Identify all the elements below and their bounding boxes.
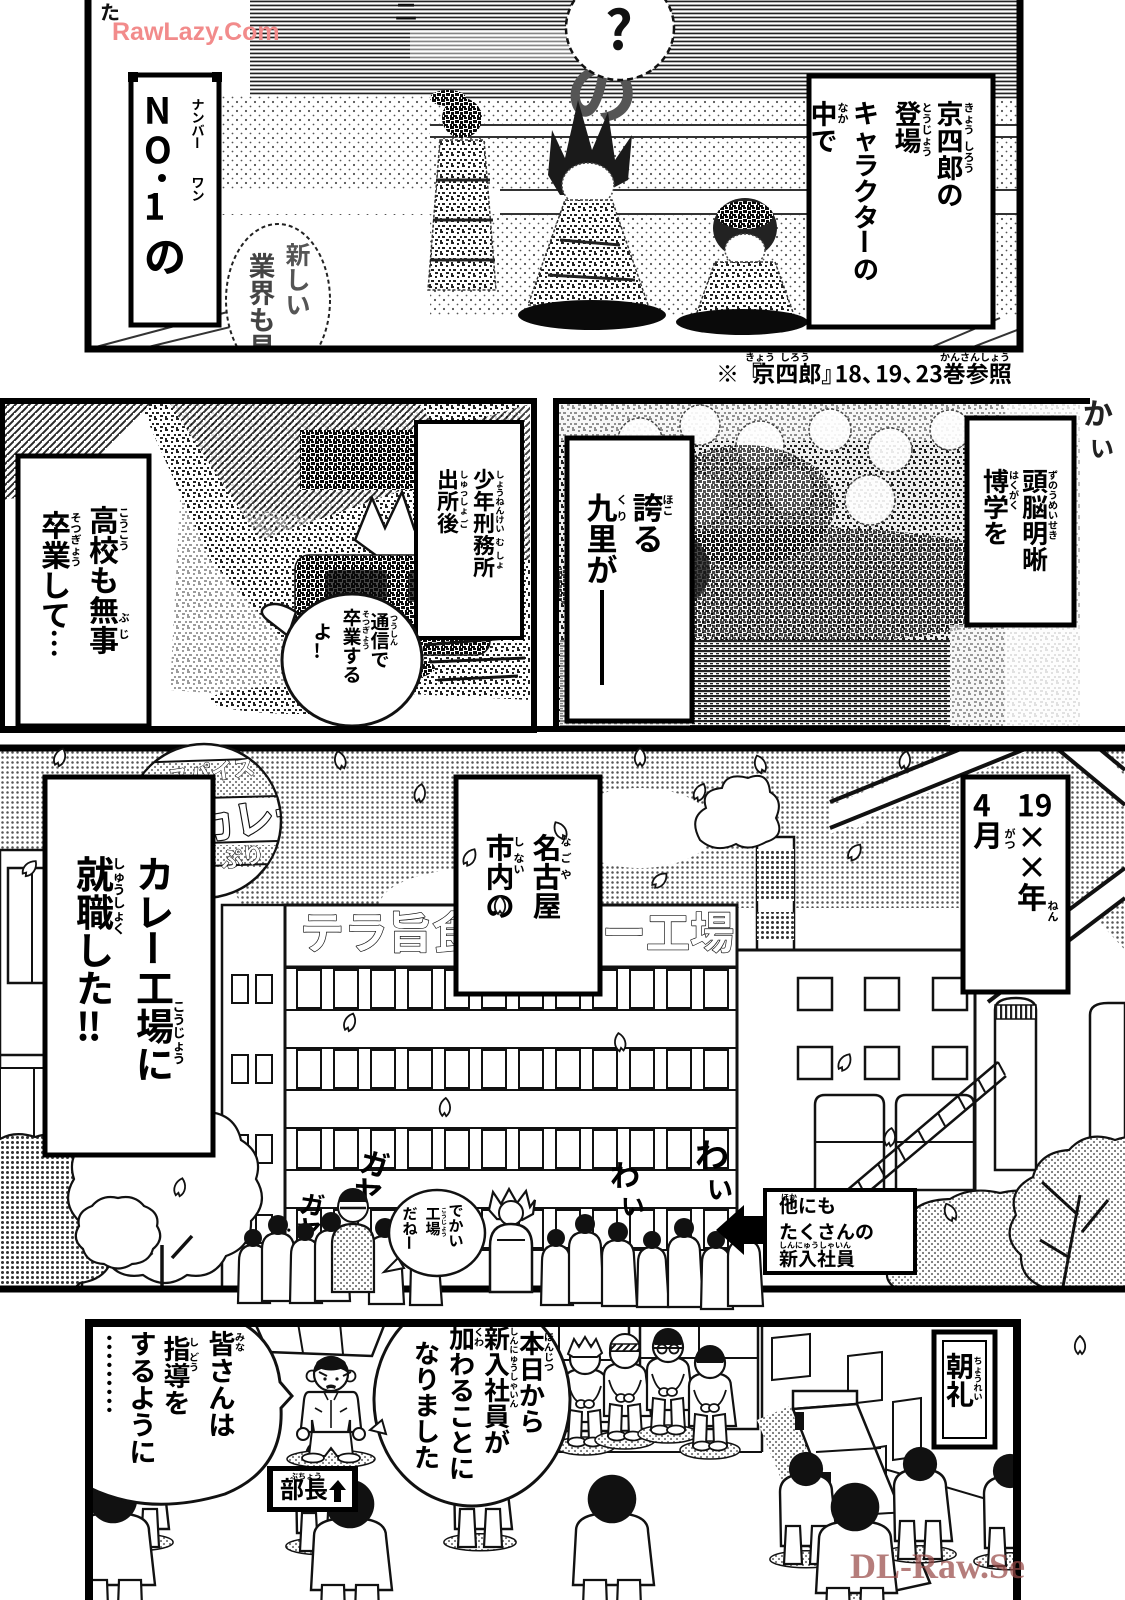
- svg-text:DL-Raw.Se: DL-Raw.Se: [850, 1546, 1025, 1586]
- svg-text:RawLazy.Com: RawLazy.Com: [112, 18, 280, 46]
